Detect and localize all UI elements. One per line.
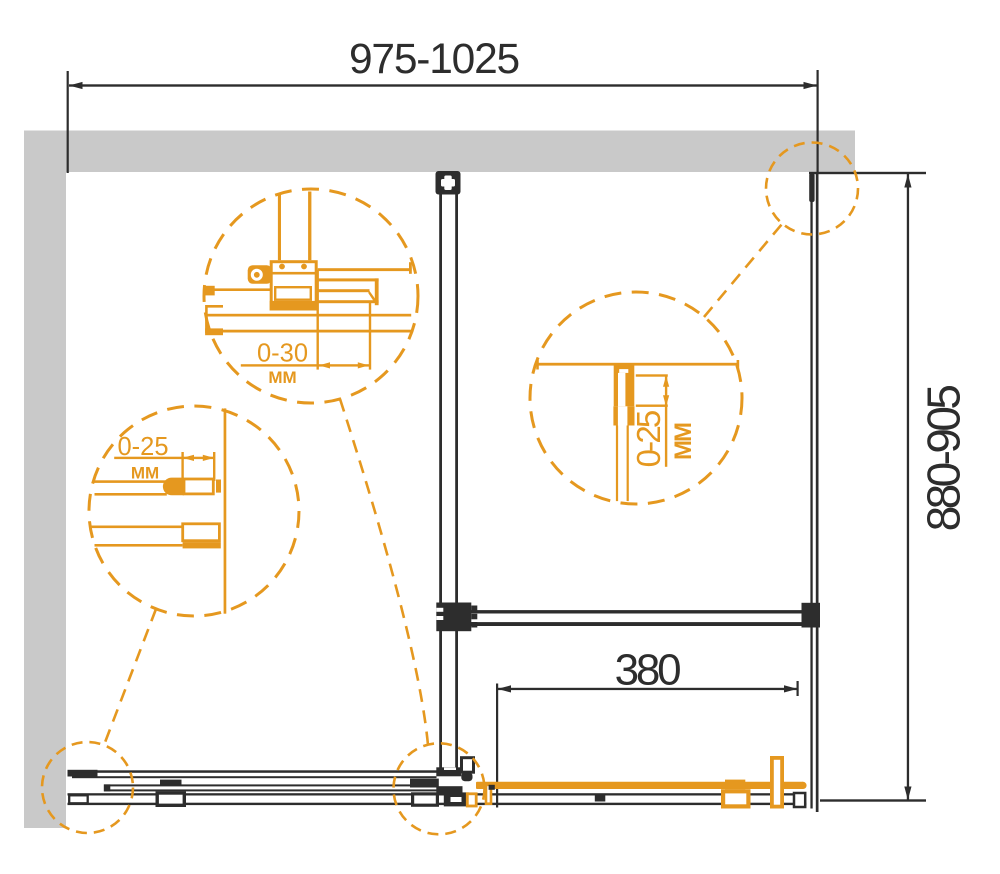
- svg-text:880-905: 880-905: [918, 386, 970, 532]
- svg-text:0-25: 0-25: [117, 433, 168, 461]
- svg-text:380: 380: [615, 646, 681, 695]
- svg-text:975-1025: 975-1025: [349, 36, 519, 83]
- svg-text:ММ: ММ: [268, 368, 296, 387]
- svg-text:ММ: ММ: [670, 423, 697, 460]
- svg-text:0-30: 0-30: [257, 340, 308, 368]
- svg-text:0-25: 0-25: [630, 411, 667, 467]
- svg-text:ММ: ММ: [131, 464, 159, 483]
